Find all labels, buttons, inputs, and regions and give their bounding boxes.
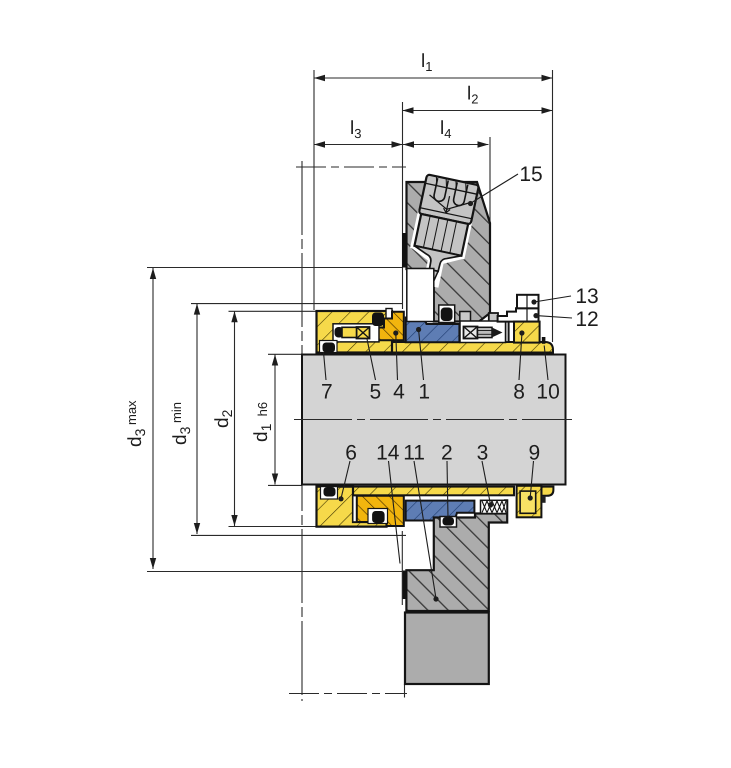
svg-text:2: 2 (441, 442, 453, 465)
svg-text:8: 8 (513, 381, 525, 404)
svg-text:3: 3 (477, 442, 489, 465)
svg-text:15: 15 (519, 163, 542, 186)
svg-text:10: 10 (536, 381, 559, 404)
svg-text:9: 9 (529, 442, 541, 465)
svg-text:11: 11 (403, 442, 425, 465)
svg-text:12: 12 (575, 308, 598, 331)
svg-text:7: 7 (321, 381, 333, 404)
svg-text:13: 13 (575, 285, 598, 308)
svg-text:5: 5 (370, 381, 382, 404)
svg-text:6: 6 (345, 442, 357, 465)
svg-text:1: 1 (418, 381, 430, 404)
svg-text:14: 14 (376, 442, 400, 465)
svg-text:4: 4 (393, 381, 405, 404)
